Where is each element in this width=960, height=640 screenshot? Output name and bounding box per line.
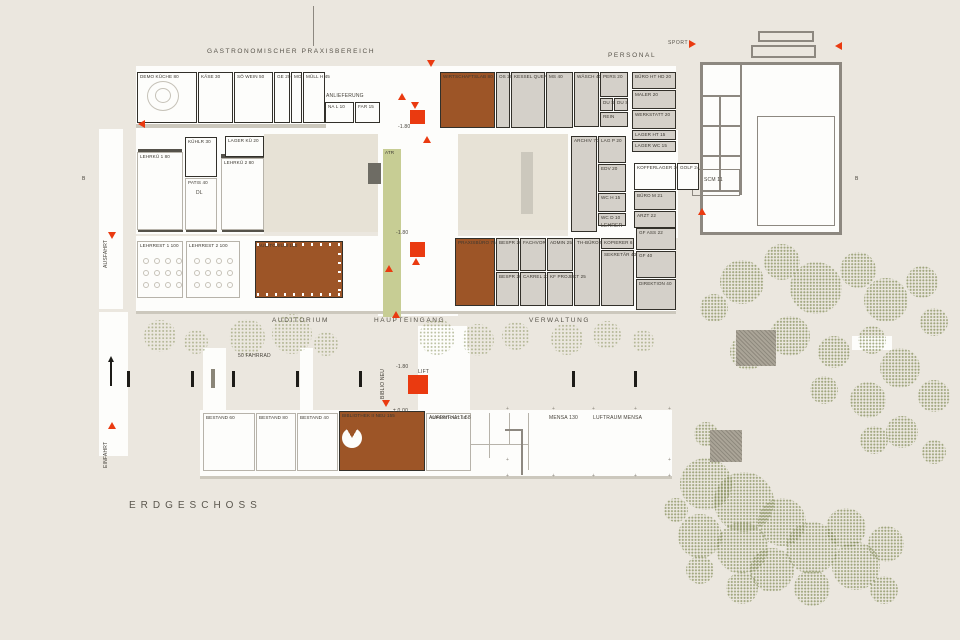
annotation-label: MENSA 130: [549, 416, 578, 422]
seat-dot: [216, 258, 222, 264]
annotation-label: ANLIEFERUNG: [326, 94, 364, 100]
room: MO 1: [291, 72, 302, 123]
room: BESTAND 60: [203, 413, 255, 471]
room-label: ATR: [385, 150, 394, 155]
seat-dot: [165, 270, 171, 276]
wall: [702, 190, 740, 192]
room: SEKRETÄR 43: [601, 250, 634, 306]
room: MÜLL H 45: [303, 72, 325, 123]
room: FAR 15: [355, 102, 380, 123]
room: AUFENTHALT 58: [426, 413, 471, 471]
annotation-label: ± 0.00: [393, 409, 408, 415]
room: LEHRREST 2 100: [186, 241, 240, 298]
tree-cluster: [880, 348, 920, 388]
room: BESTAND 40: [297, 413, 338, 471]
room: KOFFERLAGER 30: [634, 163, 676, 190]
tree-cluster: [870, 576, 898, 604]
tree-cluster: [850, 382, 886, 418]
room-label: BESPR 20: [499, 274, 522, 279]
lift-square: [408, 375, 428, 394]
bollard-gray: [211, 369, 215, 388]
tree-cluster: [794, 570, 830, 606]
room-label: MS 40: [549, 74, 563, 79]
survey-mark: +: [668, 474, 673, 479]
building-frame: [758, 31, 814, 42]
seat-dot: [216, 270, 222, 276]
direction-triangle-down: [411, 102, 419, 109]
seat-dot: [194, 270, 200, 276]
room: MALER 20: [632, 90, 676, 109]
path: [456, 348, 470, 411]
direction-triangle-down: [427, 60, 435, 67]
tree-cluster: [462, 324, 494, 356]
survey-mark: +: [506, 458, 511, 463]
room-label: BESPR 20: [499, 240, 522, 245]
tree-cluster: [551, 323, 583, 355]
annotation-label: SCM 11: [704, 178, 723, 184]
seat-dot: [143, 258, 149, 264]
annotation-label: BIBLIO NEU: [381, 369, 387, 399]
room: DIREKTION 40: [636, 279, 676, 310]
room: MS 40: [546, 72, 573, 128]
room: GE 20: [274, 72, 290, 123]
wall-bar: [200, 476, 672, 479]
annotation-label: EINFAHRT: [104, 442, 110, 468]
survey-mark: +: [506, 474, 511, 479]
survey-mark: +: [506, 407, 511, 412]
room: LEHRKÜ 2 80: [221, 158, 264, 230]
wall: [489, 413, 490, 458]
room-label: KÜHLR 30: [188, 139, 211, 144]
room-label: PRAXISBÜRO 75: [458, 240, 496, 245]
bollard: [359, 371, 362, 387]
seat-dot: [176, 258, 182, 264]
tree-cluster: [229, 319, 265, 355]
annotation-label: B: [855, 177, 859, 183]
road-arrow-head: [108, 356, 114, 362]
survey-mark: +: [592, 474, 597, 479]
direction-triangle-up: [108, 422, 116, 429]
room: LEHRKÜ 1 80: [137, 152, 183, 230]
tree-cluster: [686, 556, 714, 584]
room: FACHVOR 25: [520, 238, 546, 271]
annotation-label: LIFT: [418, 370, 429, 376]
tree-cluster: [593, 321, 621, 349]
room: TH-BÜRO 50: [574, 238, 600, 306]
wall-bar: [368, 163, 381, 184]
room-label: KOPIERER 6: [604, 240, 633, 245]
seat-dot: [227, 282, 233, 288]
room-label: BÜRO M 21: [637, 193, 663, 198]
annotation-label: LUFTRAUM MENSA: [593, 416, 642, 422]
room: PATIS 40: [185, 178, 217, 230]
room: PERS 20: [600, 72, 628, 97]
room: ARCHIV 70: [571, 136, 597, 232]
building-base: [456, 134, 568, 230]
annotation-label: -1.80: [398, 125, 410, 131]
seat-dot: [227, 258, 233, 264]
room-label: WC D 10: [601, 215, 620, 220]
room: GOLF 24: [677, 163, 699, 190]
room: DU S: [600, 98, 613, 111]
room-label: ARZT 22: [637, 213, 656, 218]
seat-dot: [216, 282, 222, 288]
annotation-label: B: [82, 177, 86, 183]
room: EDV 20: [598, 164, 626, 192]
room: KF PROJEKT 25: [547, 272, 573, 306]
room-label: GF 40: [639, 253, 652, 258]
wall: [470, 444, 528, 445]
wall: [702, 125, 740, 127]
room-label: SEKRETÄR 43: [604, 252, 636, 257]
room-label: LAGER HT 15: [635, 132, 665, 137]
room-label: PERS 20: [603, 74, 623, 79]
tree-cluster: [726, 572, 758, 604]
survey-mark: +: [592, 407, 597, 412]
seat-dot: [205, 282, 211, 288]
seat-dot: [205, 270, 211, 276]
annotation-label: 50 FAHRRAD: [238, 354, 271, 360]
room: LAGER KÜ 20: [225, 136, 264, 157]
room-label: EDV 20: [601, 166, 617, 171]
room-label: WC H 15: [601, 195, 620, 200]
seat-dot: [165, 258, 171, 264]
room-label: LEHRKÜ 1 80: [140, 154, 170, 159]
bollard: [232, 371, 235, 387]
survey-mark: +: [668, 407, 673, 412]
tree-cluster: [272, 314, 312, 354]
room: LAGER WC 15: [632, 141, 676, 152]
wall-bar: [521, 152, 533, 214]
building-frame: [757, 116, 835, 226]
room: REIN: [600, 112, 628, 127]
survey-mark: +: [552, 407, 557, 412]
annotation-label: AUSFAHRT: [104, 240, 110, 268]
room-label: DIREKTION 40: [639, 281, 672, 286]
plan-canvas: DEMO KÜCHE 80KÄSE 30SÖ WEIN 50GE 20MO 1M…: [0, 0, 960, 640]
wall: [740, 62, 742, 195]
furniture-arc: [155, 88, 171, 103]
tree-cluster: [632, 330, 654, 352]
survey-mark: +: [634, 407, 639, 412]
room: ARZT 22: [634, 211, 676, 228]
path: [99, 129, 123, 309]
lift-square: [410, 242, 425, 257]
room-label: MALER 20: [635, 92, 658, 97]
room-label: LEHRREST 2 100: [189, 243, 228, 248]
room-label: MÜLL H 45: [306, 74, 330, 79]
direction-triangle-down: [382, 400, 390, 407]
room: NA L 10: [325, 102, 354, 123]
room: KÜHLR 30: [185, 137, 217, 177]
room-label: DU S: [617, 100, 628, 105]
room-label: LEHRKÜ 2 80: [224, 160, 254, 165]
direction-triangle-up: [392, 311, 400, 318]
wall-bar: [136, 124, 326, 128]
tree-cluster: [858, 326, 886, 354]
room-label: DU S: [603, 100, 614, 105]
room-label: SÖ WEIN 50: [237, 74, 264, 79]
auditorium-seats: [257, 293, 341, 296]
room: AUDITORIUM 150: [255, 241, 343, 298]
auditorium-seats: [257, 243, 341, 246]
room: LAG P 20: [598, 136, 626, 163]
building-frame: [751, 45, 816, 58]
wall: [702, 155, 740, 157]
room: WÄSCH 40: [574, 72, 599, 127]
room: KESSEL QUER 55: [511, 72, 545, 128]
room: WC H 15: [598, 193, 626, 212]
survey-mark: +: [634, 474, 639, 479]
bollard: [634, 371, 637, 387]
tree-cluster: [184, 330, 208, 354]
room: PRAXISBÜRO 75: [455, 238, 495, 306]
room-label: BÜRO HT HD 20: [635, 74, 671, 79]
seat-dot: [165, 282, 171, 288]
room-label: BIBLIOTHEK II NEU 155: [342, 413, 395, 418]
seat-dot: [154, 270, 160, 276]
tree-cluster: [700, 294, 728, 322]
room: OS 20: [496, 72, 510, 128]
seat-dot: [176, 282, 182, 288]
tree-cluster: [818, 336, 850, 368]
seat-dot: [205, 258, 211, 264]
room: BESPR 20: [496, 238, 519, 271]
annotation-label: -1.80: [396, 365, 408, 371]
path: [99, 312, 128, 456]
room: KÄSE 30: [198, 72, 233, 123]
bollard: [572, 371, 575, 387]
tree-cluster: [868, 526, 904, 562]
room-label: BESTAND 80: [259, 415, 288, 420]
room: BÜRO M 21: [634, 191, 676, 210]
room-label: LAGER KÜ 20: [228, 138, 259, 143]
room-label: ARCHIV 70: [574, 138, 599, 143]
room-label: KÄSE 30: [201, 74, 220, 79]
room: KOPIERER 6: [601, 238, 634, 249]
room-label: WERKSTATT 20: [635, 112, 670, 117]
seat-dot: [143, 282, 149, 288]
room-label: DEMO KÜCHE 80: [140, 74, 179, 79]
room-label: LAG P 20: [601, 138, 622, 143]
stair-pacman: [342, 428, 362, 448]
seat-dot: [154, 282, 160, 288]
seat-dot: [194, 258, 200, 264]
direction-triangle-up: [398, 93, 406, 100]
auditorium-seats: [338, 247, 341, 291]
room: SÖ WEIN 50: [234, 72, 273, 123]
room-label: GE 20: [277, 74, 291, 79]
wall: [528, 413, 529, 470]
paved-square: [736, 330, 776, 366]
room: WIRTSCHAFTSLAB 80: [440, 72, 495, 128]
room-label: GOLF 24: [680, 165, 700, 170]
direction-triangle-up: [423, 136, 431, 143]
room-label: CARREL 23: [523, 274, 549, 279]
room: WERKSTATT 20: [632, 110, 676, 129]
room: DU S: [614, 98, 628, 111]
tree-cluster: [860, 426, 888, 454]
room-label: ADMIN 25: [550, 240, 572, 245]
room-label: WIRTSCHAFTSLAB 80: [443, 74, 493, 79]
building-base: [264, 134, 378, 232]
tree-cluster: [502, 322, 530, 350]
tree-cluster: [419, 319, 455, 355]
tree-cluster: [810, 376, 838, 404]
annotation-label: AUFENTHALT 58: [429, 416, 471, 422]
room: CARREL 23: [520, 272, 546, 306]
tree-cluster: [664, 498, 688, 522]
room: BÜRO HT HD 20: [632, 72, 676, 89]
room-label: LEHRREST 1 100: [140, 243, 179, 248]
annotation-label: LEHRER: [601, 224, 622, 230]
tree-cluster: [770, 316, 810, 356]
direction-triangle-right: [689, 40, 696, 48]
annotation-label: -1.80: [396, 231, 408, 237]
room-label: REIN: [603, 114, 614, 119]
paved-square: [710, 430, 742, 462]
seat-dot: [176, 270, 182, 276]
direction-triangle-up: [412, 258, 420, 265]
room-label: NA L 10: [328, 104, 345, 109]
bollard: [191, 371, 194, 387]
room-label: PATIS 40: [188, 180, 208, 185]
tree-cluster: [918, 380, 950, 412]
tree-cluster: [864, 278, 908, 322]
tree-cluster: [720, 260, 764, 304]
wall-bar: [136, 311, 676, 314]
room: BESPR 20: [496, 272, 519, 306]
tree-cluster: [922, 440, 946, 464]
room-label: GF ASS 22: [639, 230, 663, 235]
room-label: LAGER WC 15: [635, 143, 667, 148]
annotation-label: DL: [196, 191, 203, 197]
path: [300, 348, 313, 411]
tree-cluster: [886, 416, 918, 448]
room: GF ASS 22: [636, 228, 676, 250]
floor-plan: GASTRONOMISCHER PRAXISBEREICH PERSONAL S…: [0, 0, 960, 640]
room: BESTAND 80: [256, 413, 296, 471]
wall: [521, 429, 523, 475]
tree-cluster: [144, 320, 176, 352]
direction-triangle-down: [108, 232, 116, 239]
lift-square: [410, 110, 425, 124]
seat-dot: [143, 270, 149, 276]
room-label: KF PROJEKT 25: [550, 274, 586, 279]
direction-triangle-up: [698, 208, 706, 215]
seat-dot: [194, 282, 200, 288]
survey-mark: +: [552, 474, 557, 479]
bollard: [127, 371, 130, 387]
room-label: KOFFERLAGER 30: [637, 165, 679, 170]
seat-dot: [154, 258, 160, 264]
tree-cluster: [314, 332, 338, 356]
room: GF 40: [636, 251, 676, 278]
wall-bar: [313, 6, 314, 46]
tree-cluster: [906, 266, 938, 298]
road-arrow-line: [110, 360, 112, 386]
wall: [719, 95, 721, 190]
room-label: BESTAND 60: [206, 415, 235, 420]
tree-cluster: [920, 308, 948, 336]
tree-cluster: [790, 262, 842, 314]
room-label: FAR 15: [358, 104, 374, 109]
direction-triangle-left: [138, 120, 145, 128]
survey-mark: +: [668, 458, 673, 463]
bollard: [296, 371, 299, 387]
direction-triangle-up: [385, 265, 393, 272]
seat-dot: [227, 270, 233, 276]
wall: [702, 95, 740, 97]
room-label: BESTAND 40: [300, 415, 329, 420]
room: LAGER HT 15: [632, 130, 676, 140]
room: ADMIN 25: [547, 238, 573, 271]
room-label: WÄSCH 40: [577, 74, 601, 79]
direction-triangle-left: [835, 42, 842, 50]
